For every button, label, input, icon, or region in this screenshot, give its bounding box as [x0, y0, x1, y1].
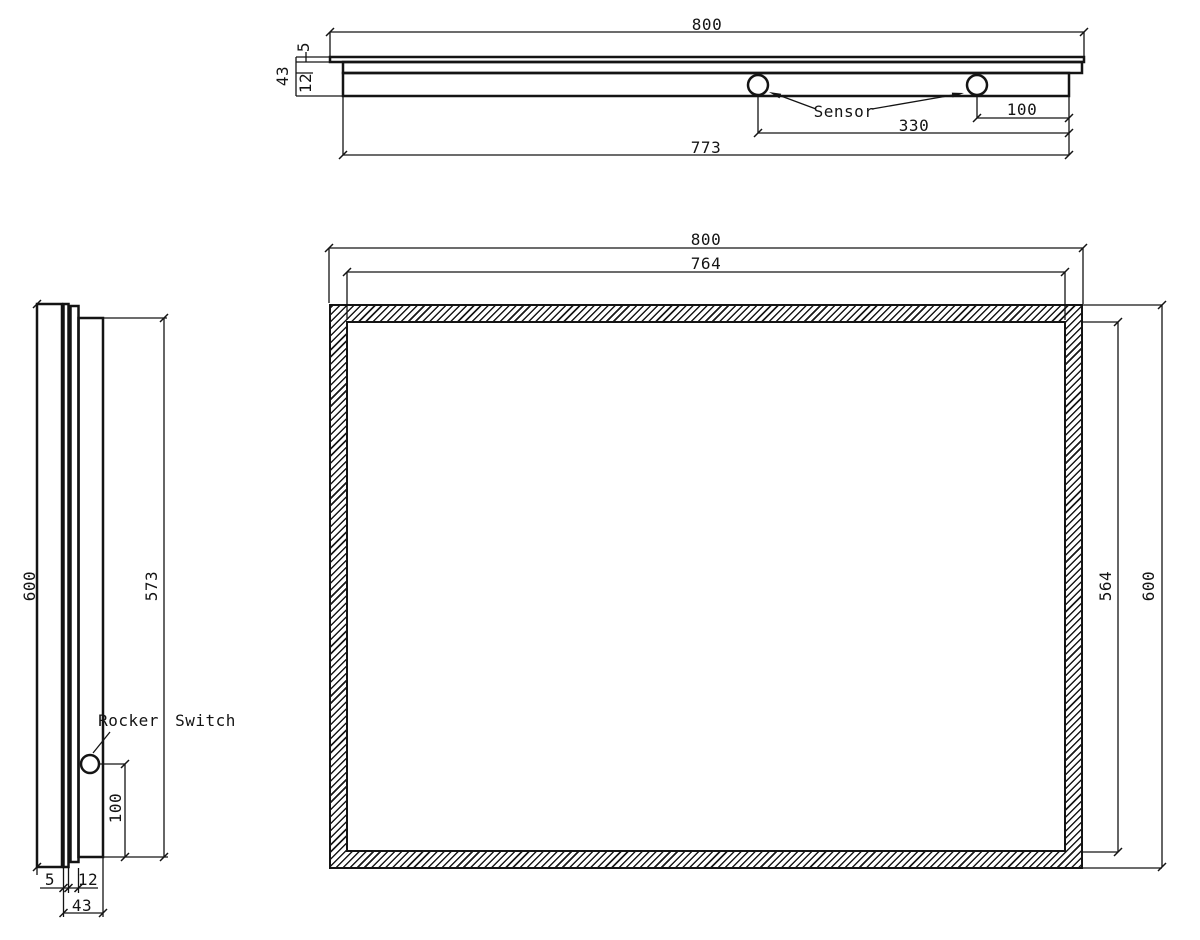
dim-label-side-total-depth: 43 — [72, 898, 92, 914]
dim-label-sensor-to-edge: 100 — [1007, 102, 1037, 118]
dim-label-front-inner-width: 764 — [691, 256, 721, 272]
dim-label-sensor-span: 330 — [899, 118, 929, 134]
rocker-switch-leader — [93, 732, 110, 753]
dim-label-side-layer-thickness: 12 — [78, 872, 98, 888]
mirror-technical-drawing: 800 5 43 12 Sensor 100 330 773 600 573 R… — [0, 0, 1200, 940]
dim-label-top-overall-width: 800 — [692, 17, 722, 33]
top-view-body-outline — [343, 73, 1069, 96]
dim-label-top-glass-thickness: 5 — [296, 42, 312, 52]
side-view — [33, 300, 168, 917]
rocker-switch-label: Rocker Switch — [98, 713, 236, 729]
sensor-circle-left — [748, 75, 768, 95]
front-view-extension-lines — [329, 248, 1162, 868]
dim-label-top-layer-thickness: 12 — [298, 73, 314, 93]
side-view-dimensions — [33, 300, 168, 917]
front-view-dimension-lines — [329, 248, 1162, 867]
side-view-glass-outline — [64, 304, 69, 867]
sensor-label: Sensor — [814, 104, 875, 120]
top-view-outline — [330, 57, 1084, 96]
dim-label-top-total-depth: 43 — [275, 66, 291, 86]
sensor-circle-right — [967, 75, 987, 95]
dim-label-side-glass-thickness: 5 — [45, 872, 55, 888]
side-view-body-outline — [37, 304, 62, 867]
dim-label-front-overall-width: 800 — [691, 232, 721, 248]
dim-label-body-width: 773 — [691, 140, 721, 156]
top-view-backing-layer-outline — [343, 62, 1082, 73]
front-view-dimensions — [325, 244, 1166, 871]
dim-label-front-overall-height: 600 — [1141, 571, 1157, 601]
side-view-dim-ticks — [33, 300, 168, 917]
dim-label-back-panel-height: 573 — [144, 571, 160, 601]
rocker-switch-circle — [81, 755, 99, 773]
dim-label-front-inner-height: 564 — [1098, 571, 1114, 601]
dim-label-side-overall-height: 600 — [22, 571, 38, 601]
side-view-back-panel-outline — [79, 318, 104, 857]
side-view-outline — [37, 304, 103, 867]
front-view-dim-ticks — [325, 244, 1166, 871]
sensor-leader-left — [781, 96, 816, 109]
drawing-linework — [0, 0, 1200, 940]
dim-label-switch-to-bottom: 100 — [108, 793, 124, 823]
